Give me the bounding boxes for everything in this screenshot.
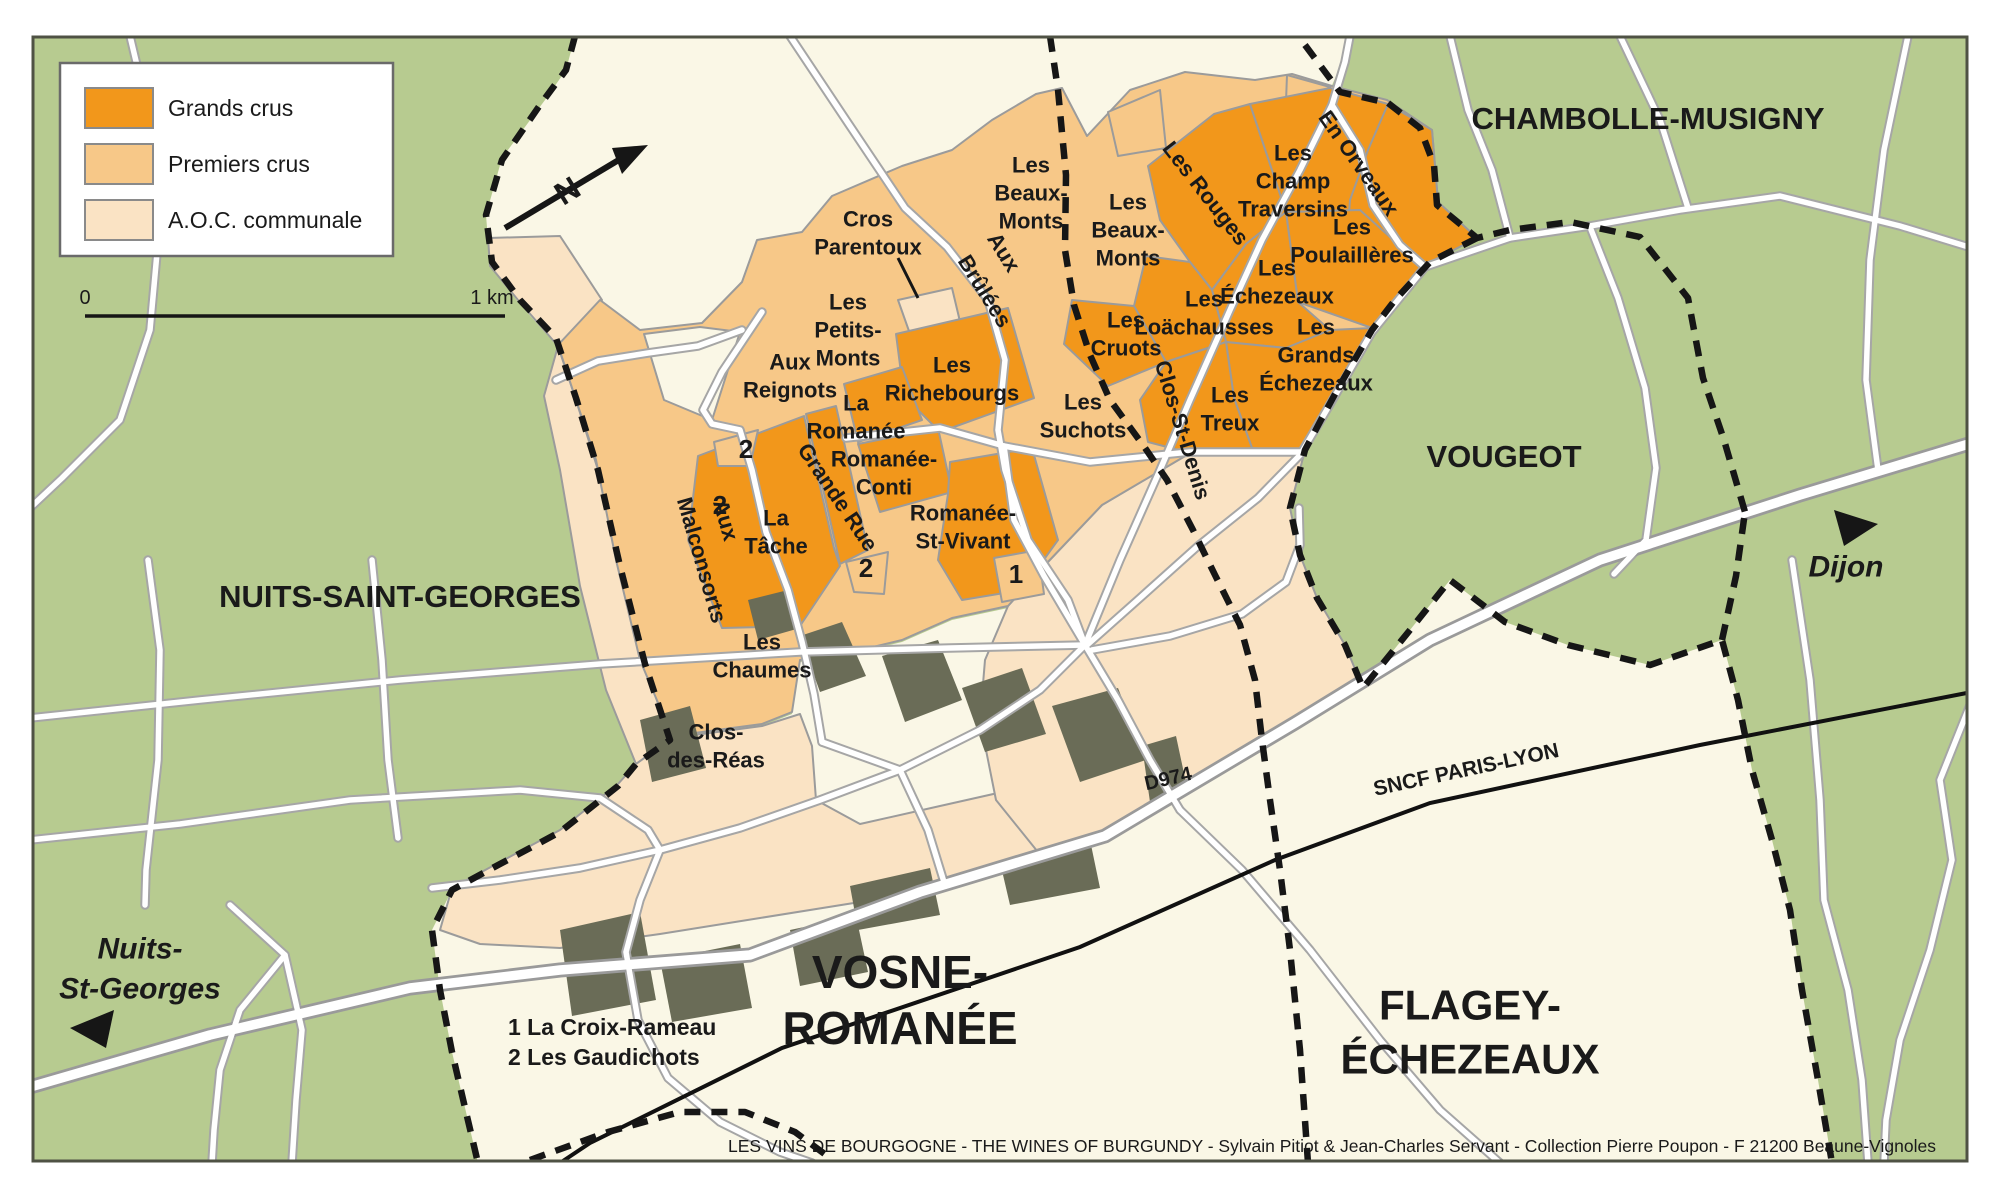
footnote-la-croix-rameau: 1 La Croix-Rameau [508, 1014, 716, 1040]
legend-swatch-grands-crus [85, 88, 153, 128]
scale-label-start: 0 [79, 287, 90, 309]
legend-label-grands-crus: Grands crus [168, 95, 293, 121]
label-dest-dijon: Dijon [1809, 551, 1884, 584]
map-content: N 0 1 km CrosParentouxLesBeaux-MontsLesB… [30, 36, 1972, 1163]
legend-swatch-aoc-communale [85, 200, 153, 240]
label-region-nuits-saint-georges: NUITS-SAINT-GEORGES [219, 579, 581, 614]
burgundy-wine-map: N 0 1 km CrosParentouxLesBeaux-MontsLesB… [0, 0, 2000, 1204]
marker-2-les-gaudichots-south: 2 [859, 553, 873, 583]
map-page: N 0 1 km CrosParentouxLesBeaux-MontsLesB… [0, 0, 2000, 1204]
legend-label-aoc-communale: A.O.C. communale [168, 207, 362, 233]
marker-2-les-gaudichots-north: 2 [739, 434, 753, 464]
marker-1-la-croix-rameau: 1 [1009, 559, 1023, 589]
legend-label-premiers-crus: Premiers crus [168, 151, 310, 177]
legend-swatch-premiers-crus [85, 144, 153, 184]
scale-label-end: 1 km [470, 287, 513, 309]
marker-2-les-gaudichots-west: 2 [713, 490, 727, 520]
footnote-les-gaudichots: 2 Les Gaudichots [508, 1044, 700, 1070]
label-region-chambolle-musigny: CHAMBOLLE-MUSIGNY [1471, 101, 1824, 136]
legend: Grands crus Premiers crus A.O.C. communa… [60, 63, 393, 256]
label-region-vougeot: VOUGEOT [1426, 439, 1581, 474]
map-caption: LES VINS DE BOURGOGNE - THE WINES OF BUR… [728, 1136, 1936, 1156]
